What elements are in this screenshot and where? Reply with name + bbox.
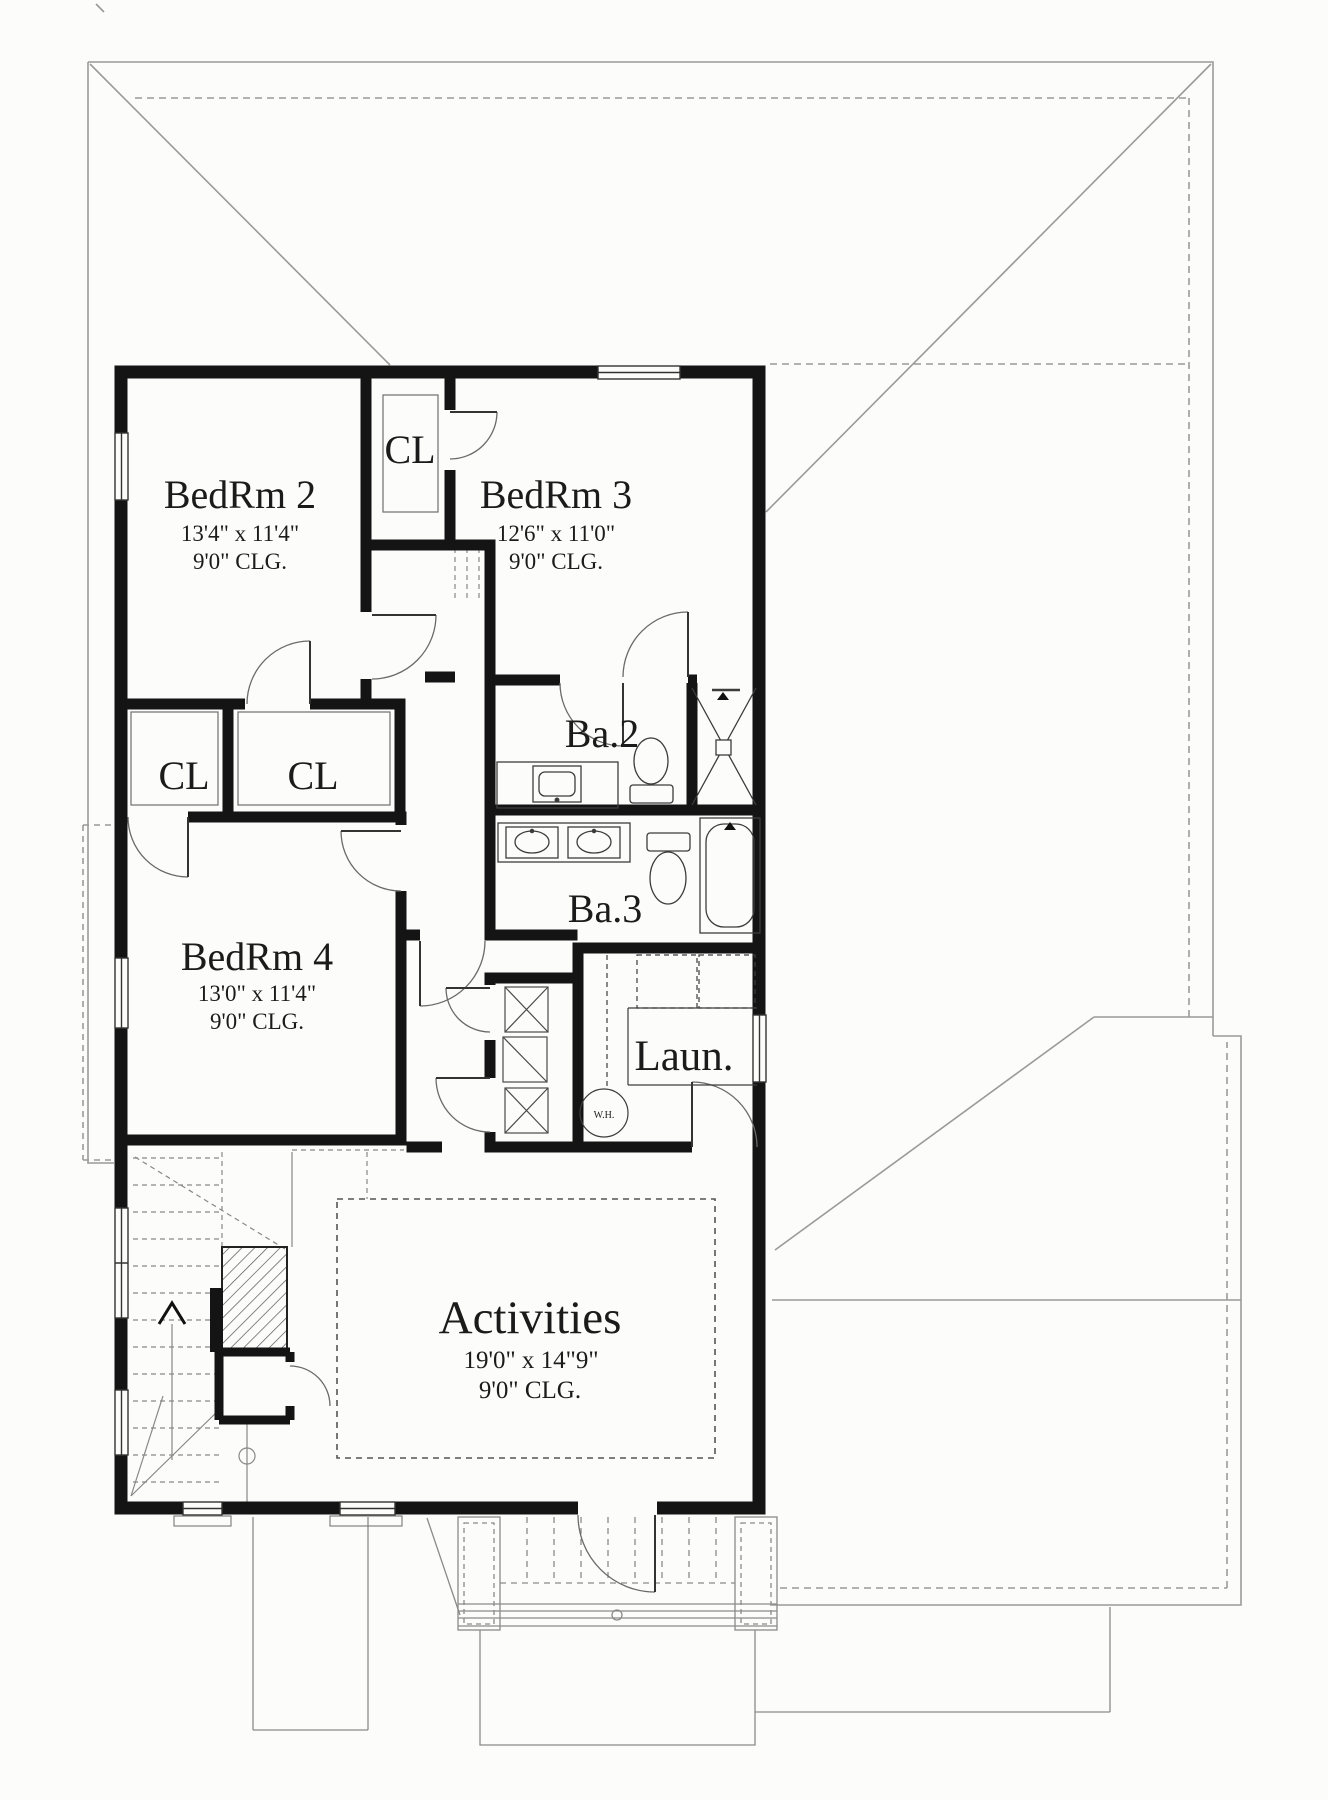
label-bedrm2-dims: 13'4" x 11'4" <box>181 521 299 546</box>
understair-closet <box>219 1352 290 1420</box>
porch-and-steps <box>253 1517 1110 1745</box>
label-bath3: Ba.3 <box>568 886 642 931</box>
label-bedrm2: BedRm 2 <box>164 472 316 517</box>
label-bedrm4-dims: 13'0" x 11'4" <box>198 981 316 1006</box>
label-activities-dims: 19'0" x 14"9" <box>463 1347 598 1374</box>
label-closet-top: CL <box>384 427 435 472</box>
label-bedrm2-clg: 9'0" CLG. <box>193 549 287 574</box>
label-bath2: Ba.2 <box>565 711 639 756</box>
label-activities: Activities <box>439 1292 622 1344</box>
label-bedrm3-dims: 12'6" x 11'0" <box>497 521 615 546</box>
staircase <box>131 548 479 1508</box>
label-bedrm4: BedRm 4 <box>181 934 333 979</box>
label-closet-mid: CL <box>287 753 338 798</box>
label-water-heater: W.H. <box>594 1110 615 1121</box>
floor-plan-page: BedRm 2 13'4" x 11'4" 9'0" CLG. CL BedRm… <box>0 0 1328 1800</box>
label-bedrm3-clg: 9'0" CLG. <box>509 549 603 574</box>
label-activities-clg: 9'0" CLG. <box>479 1377 581 1404</box>
label-closet-left: CL <box>158 753 209 798</box>
label-bedrm3: BedRm 3 <box>480 472 632 517</box>
label-laundry: Laun. <box>634 1033 733 1080</box>
label-bedrm4-clg: 9'0" CLG. <box>210 1009 304 1034</box>
floor-plan-drawing: BedRm 2 13'4" x 11'4" 9'0" CLG. CL BedRm… <box>0 0 1328 1800</box>
